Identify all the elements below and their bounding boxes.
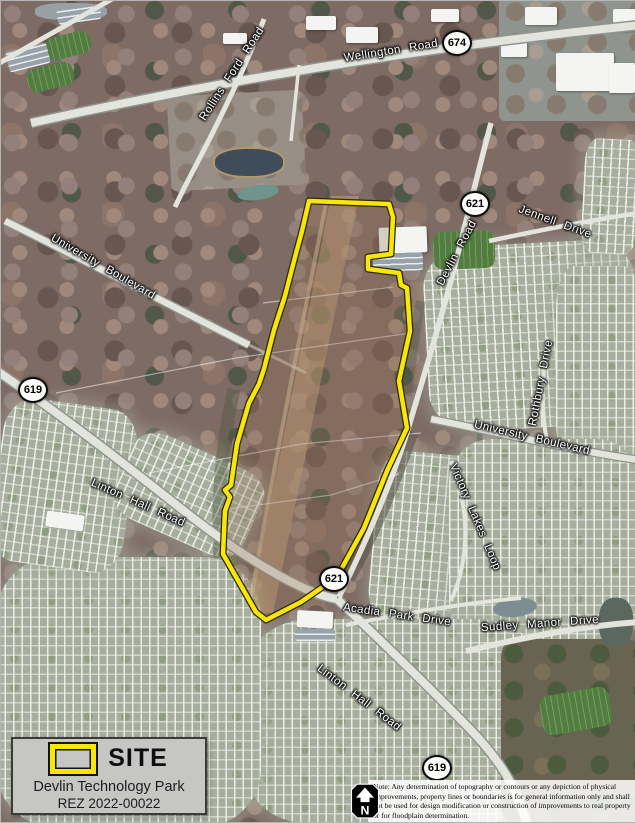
road-labels-layer: Wellington RoadRollins Ford RoadUniversi… [1,1,635,822]
road-label: Rollins Ford Road [197,25,266,123]
road-label: Sudley Manor Drive [481,614,600,634]
road-label: Victory Lakes Loop [447,462,503,572]
aerial-map: Wellington RoadRollins Ford RoadUniversi… [0,0,635,823]
road-label: Rothbury Drive [527,339,555,427]
road-label: Jennell Drive [517,203,593,241]
project-name: Devlin Technology Park [33,779,184,795]
disclaimer-note: Note: Any determination of topography or… [369,780,635,823]
svg-text:N: N [361,804,370,818]
legend: SITE Devlin Technology Park REZ 2022-000… [11,737,207,815]
north-arrow-icon: N [350,783,380,819]
site-boundary-swatch [50,744,96,774]
road-label: University Boulevard [49,232,158,302]
road-label: Devlin Road [435,218,479,287]
route-shield: 621 [319,566,349,592]
road-label: Linton Hall Road [89,477,187,529]
case-number: REZ 2022-00022 [58,796,161,811]
route-shield: 619 [18,377,48,403]
road-label: Wellington Road [343,38,439,65]
route-shield: 674 [442,30,472,56]
route-shield: 621 [460,191,490,217]
road-label: Acadia Park Drive [342,601,451,628]
road-label: Linton Hall Road [315,663,403,734]
legend-site-label: SITE [108,744,168,773]
route-shield: 619 [422,755,452,781]
